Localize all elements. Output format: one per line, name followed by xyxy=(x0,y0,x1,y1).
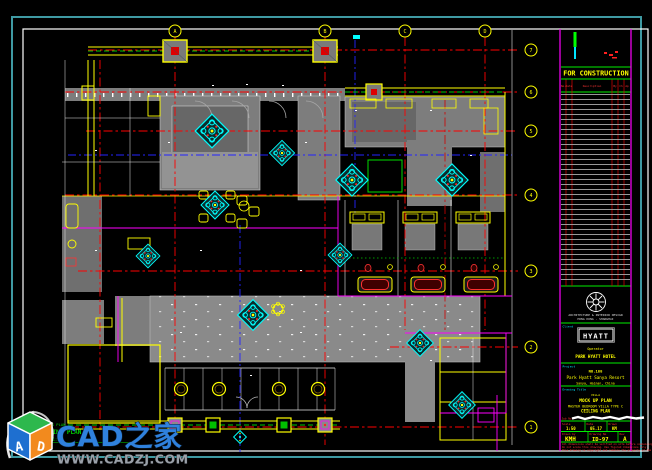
cad-sheet-viewport: A B C D 7 6 5 4 3 2 1 DRAWING PLAN CEILI… xyxy=(0,0,652,470)
grid-bubble-label: 1 xyxy=(529,425,532,431)
grid-bubble-label: 2 xyxy=(529,345,532,351)
grid-bubble: 6 xyxy=(525,86,537,98)
grid-bubble: 7 xyxy=(525,44,537,56)
grid-bubble-label: 3 xyxy=(529,269,532,275)
rev-col-header: Description xyxy=(583,84,602,88)
watermark: A D CAD之家 WWW.CADZJ.COM xyxy=(7,412,188,467)
firm-logo-icon xyxy=(587,293,606,312)
project-line3: Sanya, Hainan, China xyxy=(576,382,614,386)
cad-drawing-canvas: A B C D 7 6 5 4 3 2 1 DRAWING PLAN CEILI… xyxy=(0,0,652,470)
status-stamp: FOR CONSTRUCTION xyxy=(563,70,628,78)
cube-logo-icon xyxy=(8,412,52,460)
scale-label: Scale xyxy=(562,422,571,426)
ceiling-rosette-icon xyxy=(336,164,368,196)
grid-bubble-label: 6 xyxy=(529,90,532,96)
sheet-border-frame xyxy=(12,17,648,457)
grid-bubble: 5 xyxy=(525,125,537,137)
drawing-title-label: Drawing Title xyxy=(563,388,587,392)
grid-bubble-label: 7 xyxy=(529,48,532,54)
drawn-by-value: KMH xyxy=(565,436,576,443)
grid-bubble: 4 xyxy=(525,189,537,201)
floor-plan: A B C D 7 6 5 4 3 2 1 DRAWING PLAN CEILI… xyxy=(38,25,537,452)
grid-bubble: C xyxy=(399,25,411,37)
grid-bubble: 2 xyxy=(525,341,537,353)
project-label: Project xyxy=(563,365,576,369)
grid-bubble: 3 xyxy=(525,265,537,277)
date-value: 05.17 xyxy=(590,426,603,431)
rev-value: A xyxy=(623,436,627,443)
stamp-marks xyxy=(604,51,618,59)
date-label: Date xyxy=(587,422,594,426)
rev-col-header: Date xyxy=(566,84,573,88)
grid-bubble-label: 5 xyxy=(529,129,532,135)
drawn-value: KM xyxy=(612,426,617,431)
drawing-title-line1: VILLA xyxy=(591,393,600,397)
drawing-no-label: Drawing No xyxy=(590,432,607,436)
ceiling-rosette-icon xyxy=(449,392,476,419)
project-line1: NO.188 xyxy=(589,369,603,374)
drawing-title-line4: CEILING PLAN xyxy=(581,409,610,414)
grid-bubble-label: A xyxy=(173,29,176,35)
signature-scribble xyxy=(572,417,644,419)
grid-bubble: B xyxy=(319,25,331,37)
job-no-label: Job No xyxy=(562,417,572,421)
grid-bubble-label: D xyxy=(483,29,486,35)
ceiling-rosette-icon xyxy=(328,243,352,267)
ceiling-rosette-icon xyxy=(136,244,160,268)
client-line2: PARK HYATT HOTEL xyxy=(575,354,616,359)
title-block: FOR CONSTRUCTION No. Date Description By… xyxy=(561,32,652,452)
drawn-label: Drawn xyxy=(609,422,618,426)
grid-bubble: A xyxy=(169,25,181,37)
grid-bubble: D xyxy=(479,25,491,37)
rev-col-header: By xyxy=(613,84,617,88)
grid-bubble-label: C xyxy=(403,29,406,35)
watermark-url: WWW.CADZJ.COM xyxy=(57,452,189,467)
client-logo-text: HYATT xyxy=(583,332,609,340)
client-line1: Operator xyxy=(587,347,603,351)
rev-col-header: Ch xyxy=(619,84,623,88)
note-line: This drawing is copyright and remains th… xyxy=(562,448,652,452)
watermark-brand: CAD之家 xyxy=(56,420,182,453)
firm-name-line2: HONG KONG · SHANGHAI xyxy=(577,317,613,321)
client-label: Client xyxy=(563,325,574,329)
ceiling-rosette-icon xyxy=(269,140,294,165)
scale-value: 1:50 xyxy=(566,426,576,431)
drawing-no-value: ID-97 xyxy=(592,437,609,443)
revision-rows xyxy=(561,93,630,283)
drawing-title-line2: MOCK UP PLAN xyxy=(579,398,612,404)
project-line2: Park Hyatt Sanya Resort xyxy=(567,375,625,380)
ceiling-masses xyxy=(62,88,505,422)
grid-bubble-label: B xyxy=(323,29,326,35)
grid-bubble: 1 xyxy=(525,421,537,433)
rev-col-header: Ap xyxy=(625,84,629,88)
revision-table: No. Date Description By Ch Ap xyxy=(561,80,630,287)
grid-bubble-label: 4 xyxy=(529,193,532,199)
